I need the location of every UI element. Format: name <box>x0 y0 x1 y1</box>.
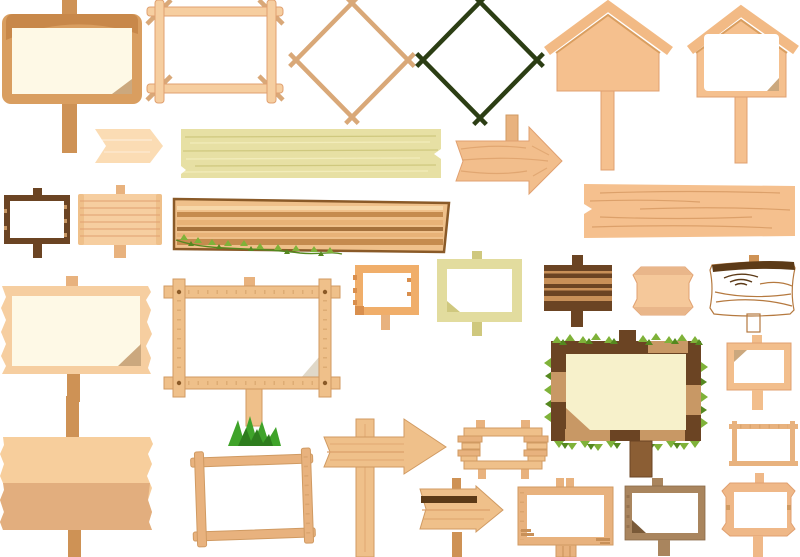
post-stub <box>116 185 125 195</box>
sign-face <box>734 492 787 528</box>
post-stub <box>66 276 78 286</box>
house-sign-panel <box>690 11 796 163</box>
sign-post <box>246 389 262 426</box>
sign-post <box>630 441 652 477</box>
sign-face <box>480 435 526 462</box>
sign-post <box>472 322 482 336</box>
sign-face <box>447 269 512 312</box>
slatted-small-sign <box>78 185 162 258</box>
clipart-canvas <box>0 0 800 557</box>
post-stub <box>472 251 482 260</box>
sign-face <box>202 461 306 534</box>
sign-post <box>452 532 462 557</box>
peach-framed-sign-post <box>727 335 791 410</box>
sign-face <box>12 28 132 94</box>
sign-post <box>752 390 763 410</box>
rough-slat-framed-sign <box>458 420 548 479</box>
sign-post <box>556 545 576 557</box>
brown-slatted-sign <box>544 255 612 327</box>
sign-post-bottom <box>68 530 81 557</box>
sign-post <box>601 91 614 170</box>
arrow-signpost <box>324 419 446 557</box>
stick-diamond-green <box>417 0 544 124</box>
stick-diamond-tan <box>290 0 415 123</box>
crossed-plank-frame-sign <box>164 277 340 446</box>
post-stub <box>755 473 764 483</box>
sign-face <box>566 354 686 430</box>
stick-square-frame <box>147 0 283 103</box>
sign-post <box>33 242 42 258</box>
log-sign <box>710 255 795 332</box>
clipart-svg <box>0 0 800 557</box>
sign-post <box>735 97 747 163</box>
slat-framed-sign-post <box>518 478 613 557</box>
thin-stick-framed-sign <box>729 421 798 466</box>
khaki-framed-sign <box>437 251 522 336</box>
ivy-framed-sign <box>544 330 708 477</box>
sign-face <box>527 495 604 537</box>
tilted-stick-frame-sign <box>190 448 315 547</box>
sign-post <box>753 536 763 557</box>
striped-arrow-sign <box>420 478 503 557</box>
small-stick-framed-sign <box>353 265 419 330</box>
corner-tab-framed-sign <box>722 473 795 557</box>
dark-framed-small-sign <box>4 188 70 258</box>
beveled-panel-sign <box>633 267 693 315</box>
two-tone-banner-sign <box>0 396 153 557</box>
sign-post <box>114 245 126 258</box>
arrow-sign-grained <box>456 115 562 194</box>
brown-framed-sign-post <box>625 478 705 556</box>
post-stub <box>452 478 461 489</box>
sign-face <box>12 296 140 366</box>
torn-edge-sign <box>1 276 152 402</box>
post-stub <box>572 255 583 266</box>
sign-post <box>571 311 583 327</box>
striped-plank-vine <box>174 199 449 256</box>
sign-post <box>658 540 670 556</box>
house-sign-solid <box>547 6 670 170</box>
pennant-arrow <box>95 129 163 163</box>
sign-face <box>10 201 64 238</box>
sign-face <box>632 493 698 533</box>
long-plank-right <box>584 184 795 238</box>
sign-face <box>704 34 779 91</box>
sign-face <box>185 296 319 379</box>
sign-post <box>381 315 390 330</box>
sign-post-top <box>66 396 79 438</box>
khaki-plank <box>181 129 441 178</box>
sign-post <box>747 314 760 332</box>
